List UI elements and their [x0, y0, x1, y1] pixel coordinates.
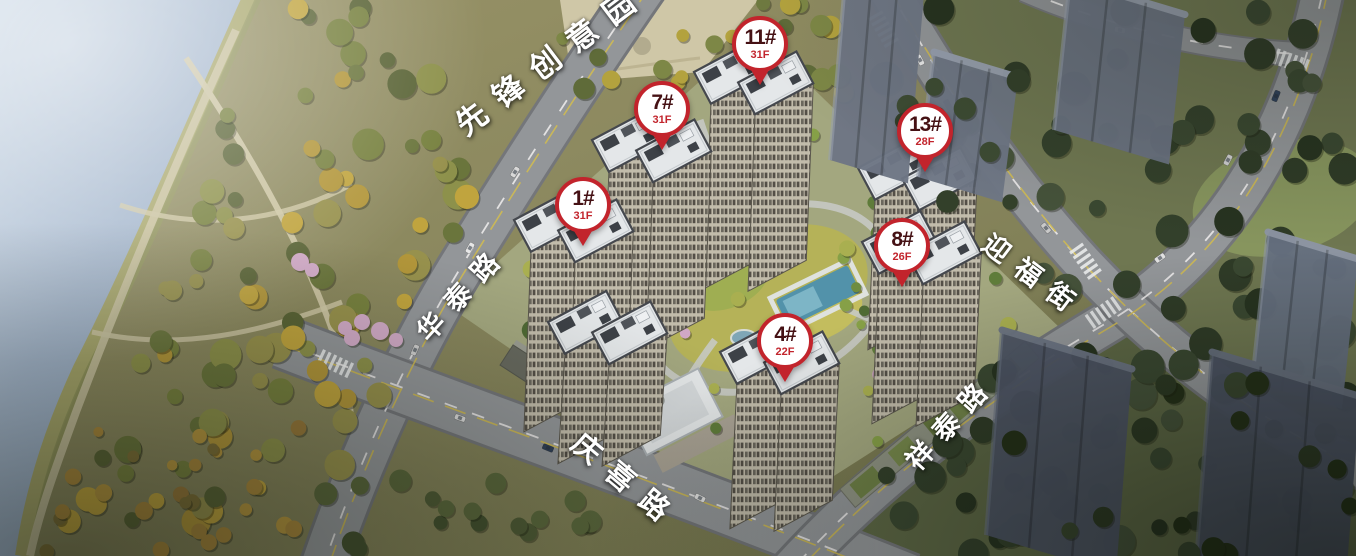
marker-pointer [916, 157, 934, 172]
marker-bubble: 8# 26F [874, 218, 930, 274]
marker-bubble: 1# 31F [555, 177, 611, 233]
building-marker-8[interactable]: 8# 26F [874, 218, 930, 287]
building-number: 13# [909, 114, 941, 135]
marker-pointer [776, 367, 794, 382]
marker-pointer [574, 231, 592, 246]
building-floors: 31F [574, 211, 593, 222]
building-marker-7[interactable]: 7# 31F [634, 81, 690, 150]
building-marker-11[interactable]: 11# 31F [732, 16, 788, 85]
building-floors: 31F [653, 115, 672, 126]
building-number: 4# [774, 324, 795, 345]
marker-pointer [893, 272, 911, 287]
marker-pointer [653, 135, 671, 150]
marker-pointer [751, 70, 769, 85]
site-plan-aerial-map: 先锋创意园 华泰路 迎福街 祥泰路 庆喜路 11# 31F 7# 31F 13#… [0, 0, 1356, 556]
marker-bubble: 7# 31F [634, 81, 690, 137]
building-number: 11# [745, 27, 776, 48]
marker-bubble: 4# 22F [757, 313, 813, 369]
building-marker-13[interactable]: 13# 28F [897, 103, 953, 172]
building-floors: 28F [916, 137, 935, 148]
building-marker-4[interactable]: 4# 22F [757, 313, 813, 382]
marker-bubble: 13# 28F [897, 103, 953, 159]
building-number: 1# [572, 188, 593, 209]
building-number: 8# [891, 229, 912, 250]
building-floors: 31F [751, 50, 770, 61]
building-floors: 22F [776, 347, 795, 358]
marker-bubble: 11# 31F [732, 16, 788, 72]
building-marker-1[interactable]: 1# 31F [555, 177, 611, 246]
building-floors: 26F [893, 252, 912, 263]
building-number: 7# [651, 92, 672, 113]
